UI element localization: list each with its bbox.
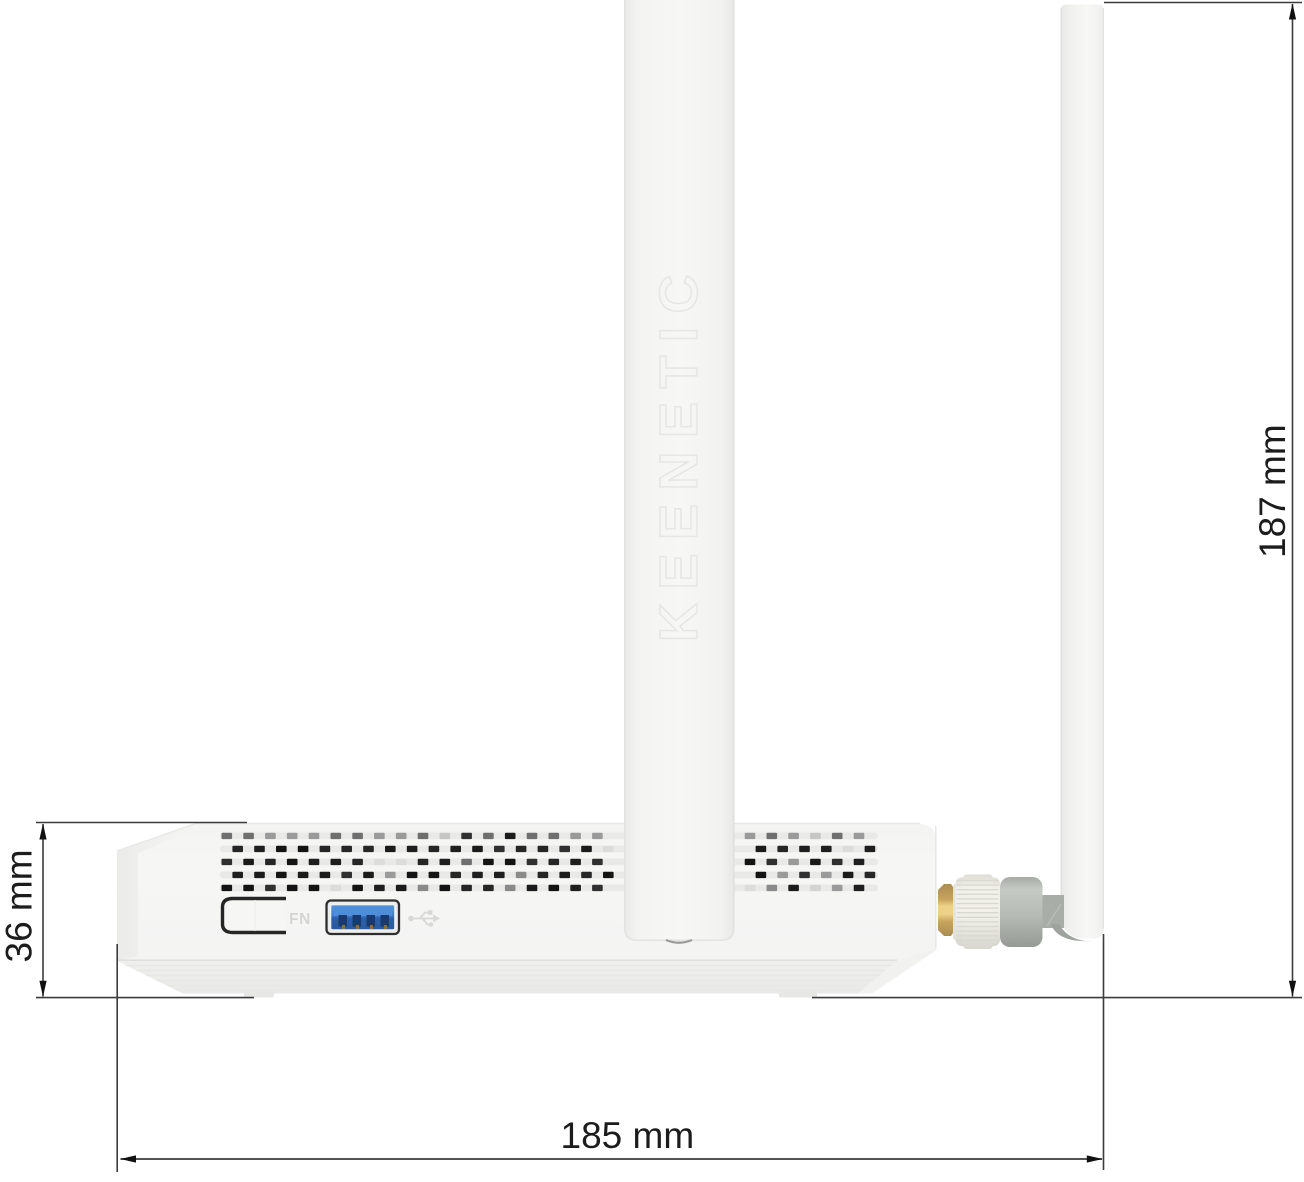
svg-text:36 mm: 36 mm [0, 849, 40, 962]
svg-text:KEENETIC: KEENETIC [649, 261, 709, 642]
svg-text:187 mm: 187 mm [1252, 424, 1293, 558]
svg-text:FN: FN [289, 911, 311, 928]
svg-text:185 mm: 185 mm [561, 1115, 695, 1156]
